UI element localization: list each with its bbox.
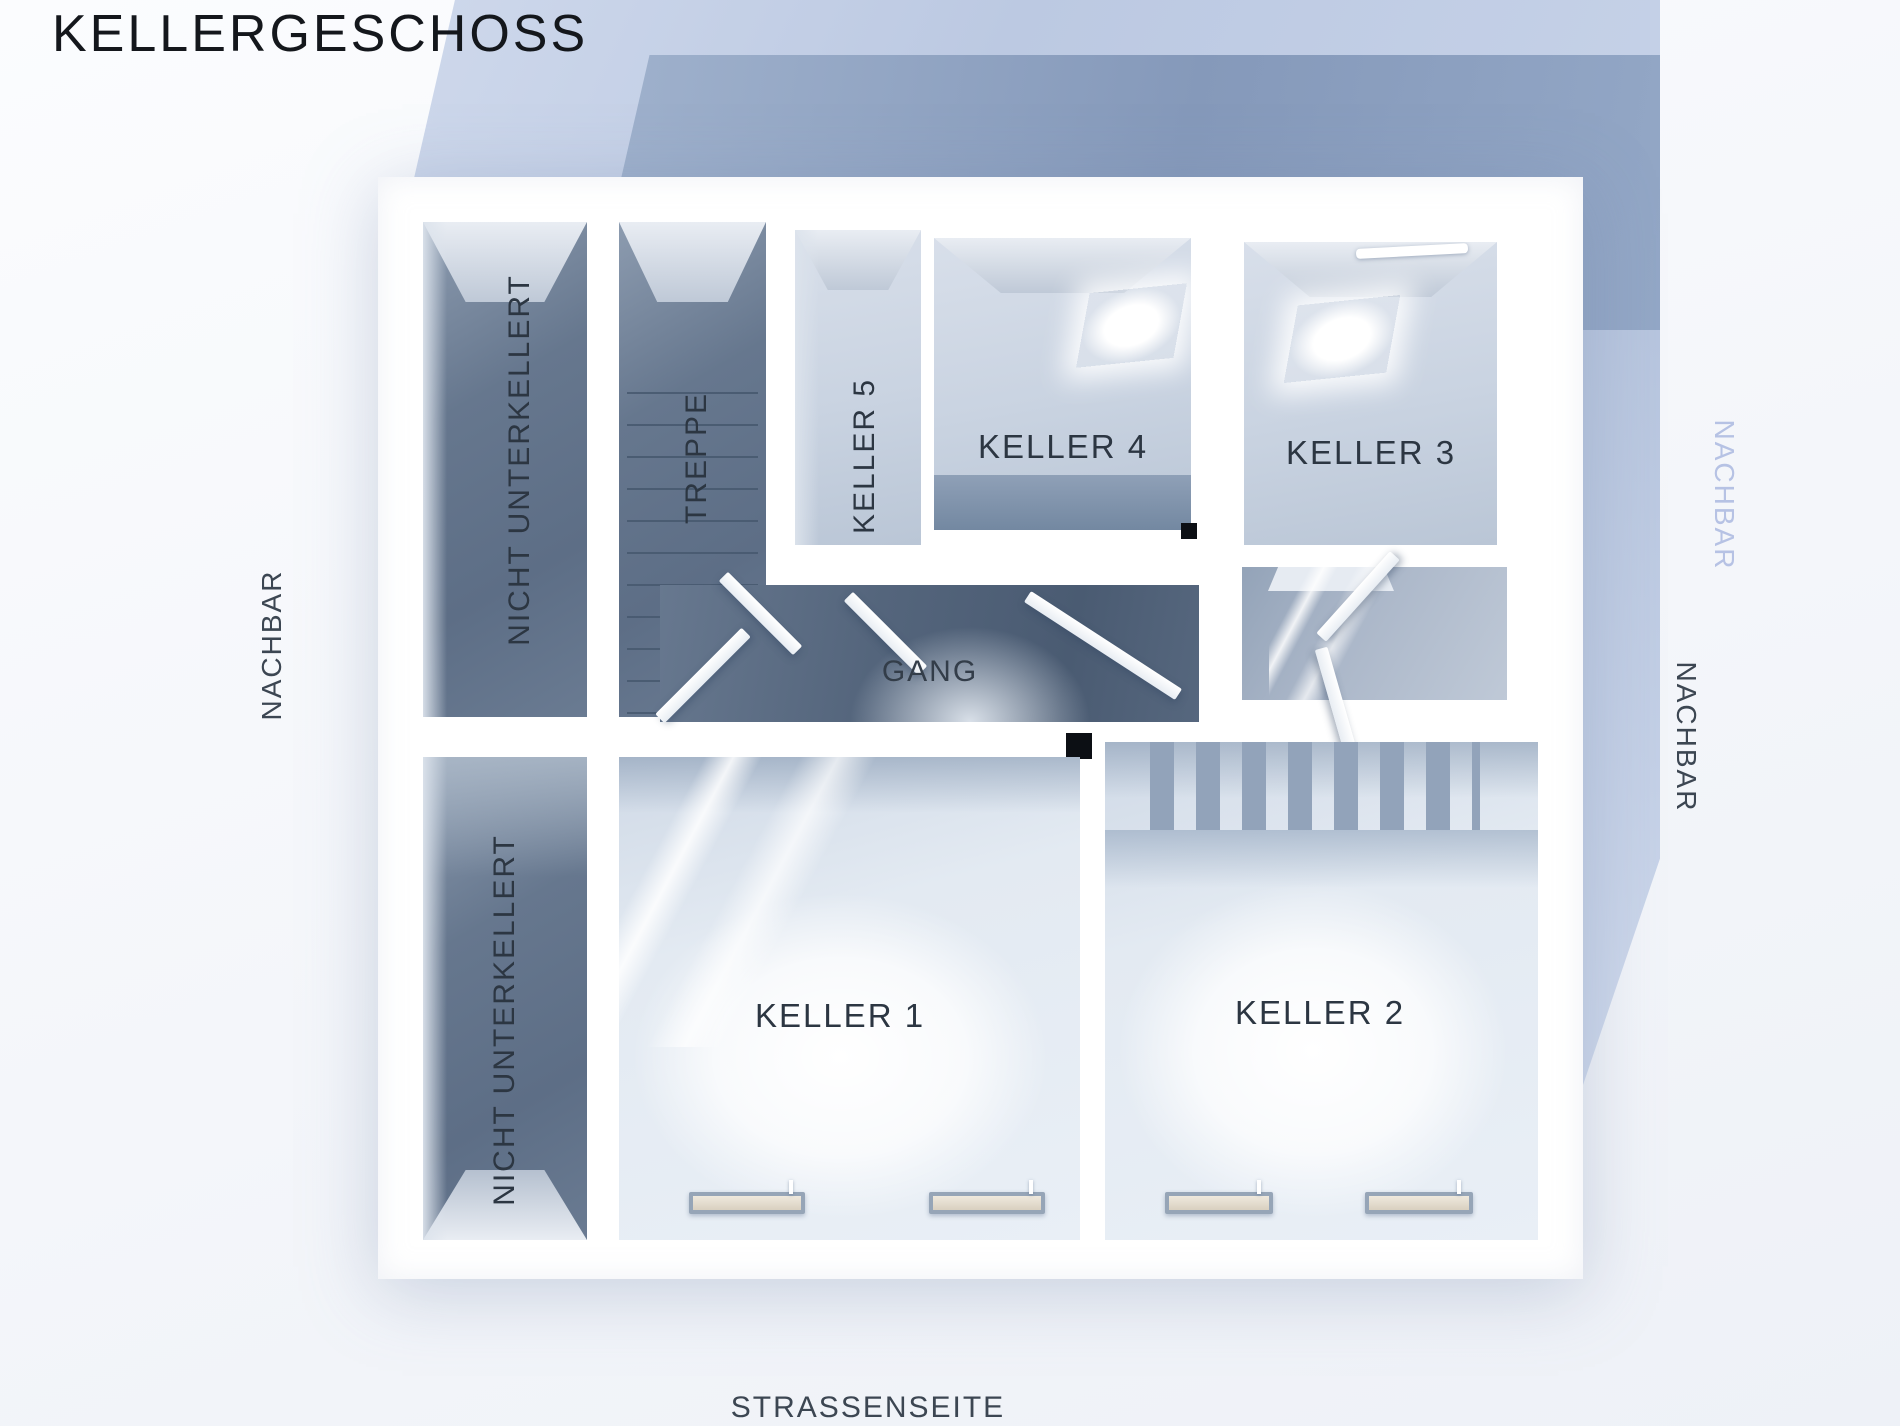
- shelf-stripes: [1150, 742, 1480, 830]
- window-well: [1165, 1192, 1273, 1214]
- room-label-gang: GANG: [882, 655, 978, 689]
- neighbor-label-left: NACHBAR: [256, 570, 288, 721]
- room-label-nicht-unterkellert-top: NICHT UNTERKELLERT: [503, 274, 537, 646]
- neighbor-label-right-lower: NACHBAR: [1670, 662, 1702, 813]
- near-wall-face: [934, 475, 1191, 530]
- far-wall: [934, 238, 1191, 293]
- window-well: [689, 1192, 805, 1214]
- room-label-keller-2: KELLER 2: [1235, 994, 1405, 1032]
- far-wall: [619, 222, 766, 302]
- room-label-nicht-unterkellert-bottom: NICHT UNTERKELLERT: [488, 834, 522, 1206]
- room-label-treppe: TREPPE: [680, 392, 714, 524]
- column-marker: [1066, 733, 1092, 759]
- window-well: [929, 1192, 1045, 1214]
- room-label-keller-5: KELLER 5: [848, 378, 882, 534]
- neighbor-label-right-upper: NACHBAR: [1708, 420, 1740, 571]
- room-label-keller-1: KELLER 1: [755, 997, 925, 1035]
- page-title: KELLERGESCHOSS: [52, 4, 588, 64]
- light-beam: [1269, 567, 1428, 700]
- floorplan-rendering: KELLERGESCHOSS NACHBAR NACHBAR NACHBAR S…: [0, 0, 1900, 1426]
- skylight: [1076, 283, 1187, 368]
- room-keller-4: [934, 238, 1191, 530]
- side-wall: [423, 757, 447, 1240]
- background-right-wedge: [1583, 330, 1660, 1085]
- skylight: [1284, 295, 1401, 383]
- room-label-keller-4: KELLER 4: [978, 428, 1148, 466]
- wall-shadow: [1105, 830, 1538, 888]
- floorplan: NICHT UNTERKELLERT TREPPE KELLER 5 KELLE…: [378, 177, 1583, 1279]
- room-keller-2: [1105, 742, 1538, 1240]
- side-wall: [423, 222, 447, 717]
- column-marker: [1181, 523, 1197, 539]
- window-well: [1365, 1192, 1473, 1214]
- room-keller-3: [1244, 242, 1497, 545]
- room-label-keller-3: KELLER 3: [1286, 434, 1456, 472]
- street-side-label: STRASSENSEITE: [731, 1391, 1005, 1425]
- side-wall: [795, 230, 819, 545]
